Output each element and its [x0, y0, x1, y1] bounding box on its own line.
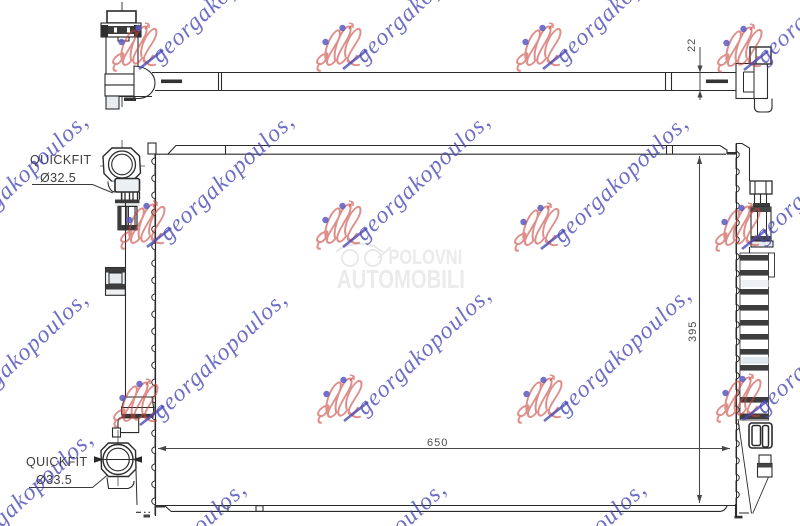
svg-text:395: 395 [687, 321, 699, 342]
svg-text:AUTOMOBILI: AUTOMOBILI [337, 265, 465, 294]
svg-text:Ø32.5: Ø32.5 [40, 171, 76, 185]
svg-text:22: 22 [686, 38, 698, 52]
svg-text:650: 650 [427, 437, 448, 449]
